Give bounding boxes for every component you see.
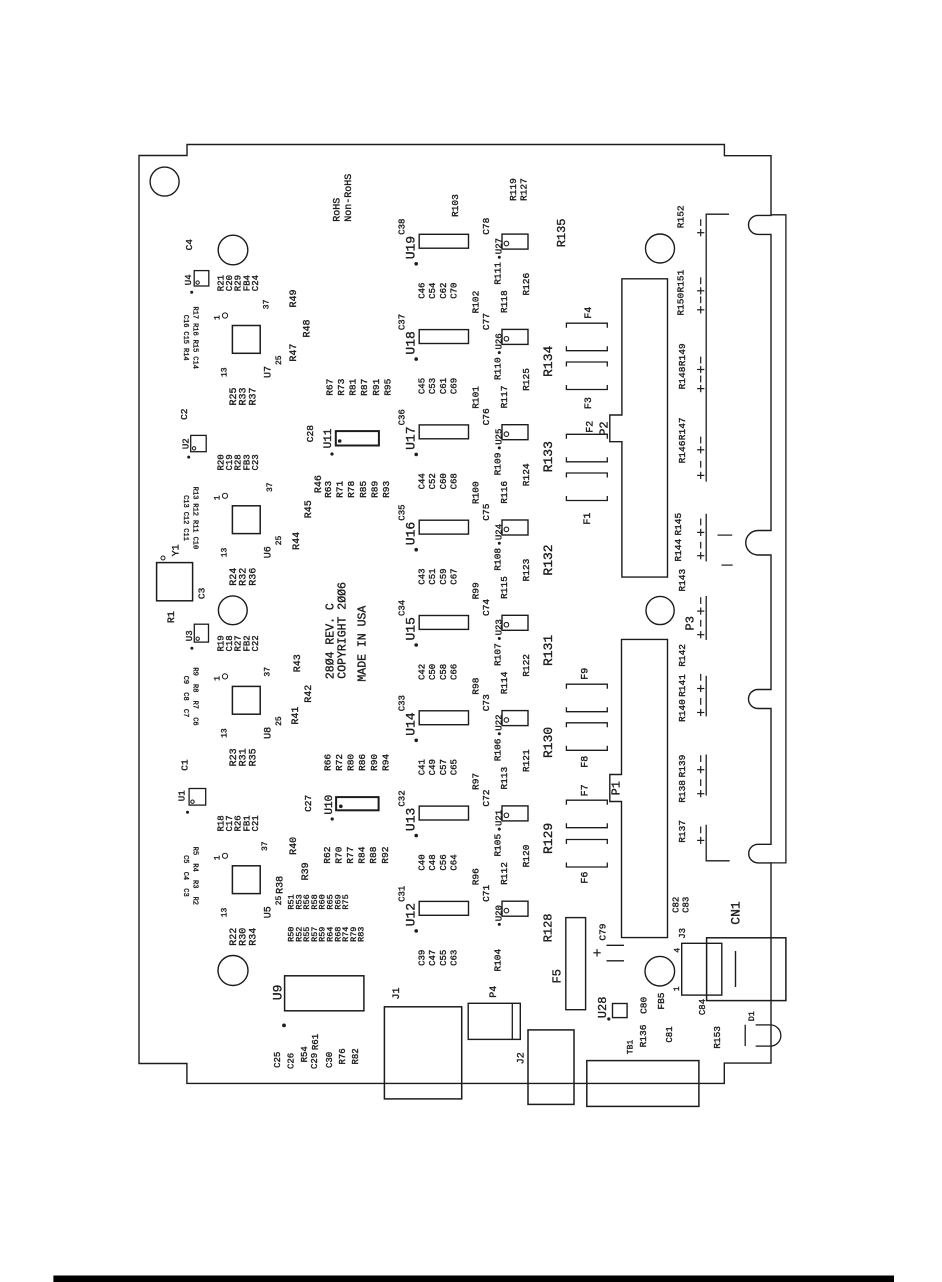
svg-text:F2: F2 xyxy=(586,421,597,433)
svg-text:C32: C32 xyxy=(398,790,408,806)
svg-text:R144: R144 xyxy=(673,538,684,561)
svg-text:13: 13 xyxy=(221,907,230,917)
svg-text:C3: C3 xyxy=(197,587,208,599)
svg-text:C13: C13 xyxy=(181,495,189,508)
svg-text:U9: U9 xyxy=(271,985,286,1001)
svg-text:R40: R40 xyxy=(289,837,300,855)
svg-text:R16: R16 xyxy=(191,323,199,336)
svg-text:R98: R98 xyxy=(471,677,482,694)
svg-text:R80: R80 xyxy=(346,754,357,771)
svg-text:C39: C39 xyxy=(418,950,428,966)
svg-text:C25: C25 xyxy=(273,1052,283,1068)
svg-text:C83: C83 xyxy=(682,897,692,913)
svg-text:R122: R122 xyxy=(521,654,532,677)
svg-text:R70: R70 xyxy=(333,846,344,863)
svg-text:C24: C24 xyxy=(251,275,261,291)
svg-text:C59: C59 xyxy=(439,568,449,584)
svg-text:C49: C49 xyxy=(428,759,438,775)
svg-text:U25: U25 xyxy=(495,429,505,445)
svg-text:R123: R123 xyxy=(521,558,532,581)
svg-text:R76: R76 xyxy=(338,1048,348,1064)
svg-text:25: 25 xyxy=(275,535,284,545)
svg-text:R63: R63 xyxy=(323,480,334,497)
svg-text:R103: R103 xyxy=(450,194,461,217)
svg-text:R90: R90 xyxy=(369,754,380,771)
svg-text:U12: U12 xyxy=(404,903,419,926)
svg-text:C78: C78 xyxy=(481,217,492,234)
svg-text:R44: R44 xyxy=(292,532,303,550)
svg-text:R39: R39 xyxy=(301,862,312,880)
svg-text:C36: C36 xyxy=(398,409,408,425)
svg-text:Non-RoHS: Non-RoHS xyxy=(344,174,355,222)
svg-text:R107: R107 xyxy=(492,643,503,666)
svg-text:F5: F5 xyxy=(551,969,565,983)
svg-text:P4: P4 xyxy=(489,986,500,998)
svg-text:C54: C54 xyxy=(428,283,438,299)
svg-text:J3: J3 xyxy=(678,928,688,939)
svg-text:R139: R139 xyxy=(677,754,688,777)
svg-text:R89: R89 xyxy=(369,480,380,497)
svg-text:C26: C26 xyxy=(287,1053,297,1069)
svg-text:F6: F6 xyxy=(581,872,592,884)
svg-text:U4: U4 xyxy=(184,274,194,285)
svg-text:R8: R8 xyxy=(191,684,199,692)
svg-text:R100: R100 xyxy=(471,481,482,504)
svg-text:37: 37 xyxy=(261,841,270,851)
svg-text:C60: C60 xyxy=(439,473,449,489)
svg-text:C67: C67 xyxy=(450,568,460,584)
svg-text:R54: R54 xyxy=(300,1046,310,1062)
svg-text:R152: R152 xyxy=(676,205,687,228)
svg-text:MADE IN USA: MADE IN USA xyxy=(356,606,369,682)
svg-text:R75: R75 xyxy=(341,894,351,909)
svg-text:C45: C45 xyxy=(418,378,428,394)
svg-text:C47: C47 xyxy=(428,950,438,966)
svg-text:TB1: TB1 xyxy=(626,1040,635,1055)
svg-text:C3: C3 xyxy=(181,888,189,896)
svg-text:R83: R83 xyxy=(357,927,367,942)
svg-text:R147: R147 xyxy=(677,417,688,440)
svg-text:R92: R92 xyxy=(380,846,391,863)
svg-text:C81: C81 xyxy=(665,1026,675,1042)
svg-text:R91: R91 xyxy=(371,378,382,395)
svg-text:U24: U24 xyxy=(495,524,505,540)
svg-text:C7: C7 xyxy=(181,709,189,717)
svg-text:13: 13 xyxy=(221,728,230,738)
svg-text:R87: R87 xyxy=(359,379,370,396)
svg-text:R108: R108 xyxy=(492,548,503,571)
svg-text:P2: P2 xyxy=(597,421,611,435)
svg-text:R125: R125 xyxy=(521,368,532,391)
svg-text:1: 1 xyxy=(214,855,223,860)
svg-text:R130: R130 xyxy=(541,727,556,758)
svg-text:U2: U2 xyxy=(182,438,192,449)
svg-text:R137: R137 xyxy=(677,820,688,843)
svg-text:R124: R124 xyxy=(521,463,532,486)
svg-text:C72: C72 xyxy=(481,789,492,806)
svg-text:R141: R141 xyxy=(677,674,688,697)
svg-text:R49: R49 xyxy=(289,289,300,307)
svg-text:R13: R13 xyxy=(191,487,199,500)
svg-text:C10: C10 xyxy=(191,537,199,550)
svg-text:C69: C69 xyxy=(450,378,460,394)
svg-text:U16: U16 xyxy=(404,522,419,545)
svg-text:C30: C30 xyxy=(325,1052,335,1068)
svg-text:R110: R110 xyxy=(492,357,503,380)
svg-text:1: 1 xyxy=(214,676,223,681)
svg-text:13: 13 xyxy=(221,547,230,557)
svg-text:C2: C2 xyxy=(179,408,190,420)
svg-text:R104: R104 xyxy=(492,948,503,971)
svg-text:25: 25 xyxy=(275,355,284,365)
svg-text:U27: U27 xyxy=(495,238,505,254)
svg-text:R117: R117 xyxy=(499,386,510,409)
svg-text:F7: F7 xyxy=(581,784,592,796)
svg-text:U3: U3 xyxy=(185,630,195,641)
svg-text:R111: R111 xyxy=(492,262,503,285)
svg-text:F3: F3 xyxy=(584,397,595,409)
svg-text:R61: R61 xyxy=(311,1034,321,1050)
svg-text:R112: R112 xyxy=(499,862,510,885)
svg-text:U8: U8 xyxy=(263,727,274,739)
svg-text:P1: P1 xyxy=(610,781,624,795)
svg-text:R11: R11 xyxy=(191,520,199,533)
svg-text:R134: R134 xyxy=(541,345,556,376)
svg-text:C42: C42 xyxy=(418,664,428,680)
svg-text:U6: U6 xyxy=(263,546,274,558)
svg-text:R140: R140 xyxy=(677,699,688,722)
svg-text:R35: R35 xyxy=(249,748,260,766)
svg-text:F9: F9 xyxy=(581,668,592,680)
svg-text:R14: R14 xyxy=(181,348,189,361)
svg-text:C4: C4 xyxy=(181,872,189,880)
svg-text:C22: C22 xyxy=(251,635,261,651)
svg-text:R101: R101 xyxy=(471,386,482,409)
svg-text:R132: R132 xyxy=(541,544,556,575)
svg-text:R127: R127 xyxy=(518,178,529,201)
svg-text:R3: R3 xyxy=(191,880,199,888)
svg-text:U23: U23 xyxy=(495,619,505,635)
svg-text:C34: C34 xyxy=(398,600,408,616)
svg-text:R1: R1 xyxy=(167,611,178,623)
svg-text:C56: C56 xyxy=(439,854,449,870)
svg-text:R146: R146 xyxy=(677,440,688,463)
svg-text:R47: R47 xyxy=(289,344,300,362)
svg-text:C75: C75 xyxy=(481,503,492,520)
svg-text:R38: R38 xyxy=(275,876,286,894)
svg-text:R73: R73 xyxy=(336,378,347,395)
svg-text:R82: R82 xyxy=(351,1048,361,1064)
svg-text:D1: D1 xyxy=(747,1011,757,1021)
svg-text:U7: U7 xyxy=(263,366,274,378)
svg-text:C12: C12 xyxy=(181,512,189,525)
svg-text:C33: C33 xyxy=(398,695,408,711)
svg-text:C65: C65 xyxy=(450,759,460,775)
svg-text:R153: R153 xyxy=(712,1026,723,1049)
svg-text:R34: R34 xyxy=(249,928,260,946)
svg-text:C55: C55 xyxy=(439,950,449,966)
svg-text:C28: C28 xyxy=(305,425,316,442)
svg-text:C71: C71 xyxy=(481,884,492,901)
svg-text:R41: R41 xyxy=(291,707,302,725)
svg-text:C6: C6 xyxy=(191,717,199,725)
svg-text:F1: F1 xyxy=(583,513,594,525)
svg-text:R133: R133 xyxy=(541,441,556,472)
svg-text:13: 13 xyxy=(221,367,230,377)
svg-text:C79: C79 xyxy=(597,923,608,940)
svg-text:R128: R128 xyxy=(542,913,556,942)
svg-text:R148: R148 xyxy=(677,366,688,389)
svg-text:C44: C44 xyxy=(418,473,428,489)
svg-text:R84: R84 xyxy=(357,846,368,863)
svg-text:R102: R102 xyxy=(471,290,482,313)
svg-text:R118: R118 xyxy=(499,290,510,313)
svg-text:C50: C50 xyxy=(428,664,438,680)
svg-text:25: 25 xyxy=(275,716,284,726)
svg-text:C46: C46 xyxy=(418,283,428,299)
svg-text:C48: C48 xyxy=(428,854,438,870)
svg-text:U19: U19 xyxy=(404,236,419,259)
svg-text:37: 37 xyxy=(264,667,273,677)
svg-text:R106: R106 xyxy=(492,738,503,761)
svg-text:U20: U20 xyxy=(495,905,505,921)
svg-text:C1: C1 xyxy=(180,759,191,771)
svg-text:C41: C41 xyxy=(418,759,428,775)
svg-text:R116: R116 xyxy=(499,481,510,504)
svg-text:25: 25 xyxy=(275,895,284,905)
svg-text:R126: R126 xyxy=(521,272,532,295)
svg-text:37: 37 xyxy=(262,299,271,309)
svg-text:C57: C57 xyxy=(439,759,449,775)
svg-text:1: 1 xyxy=(214,315,223,320)
svg-text:F8: F8 xyxy=(581,756,592,768)
svg-text:U14: U14 xyxy=(404,712,419,736)
svg-text:C15: C15 xyxy=(181,331,189,344)
svg-text:R96: R96 xyxy=(471,868,482,885)
svg-text:RoHS: RoHS xyxy=(333,198,344,222)
svg-text:C9: C9 xyxy=(181,676,189,684)
svg-text:R7: R7 xyxy=(191,701,199,709)
svg-text:R62: R62 xyxy=(322,846,333,863)
svg-text:R86: R86 xyxy=(357,754,368,771)
svg-text:R115: R115 xyxy=(499,576,510,599)
svg-text:R12: R12 xyxy=(191,503,199,516)
svg-text:U13: U13 xyxy=(404,808,419,831)
svg-text:C63: C63 xyxy=(450,950,460,966)
svg-text:R81: R81 xyxy=(348,378,359,395)
svg-text:R88: R88 xyxy=(368,846,379,863)
svg-text:U1: U1 xyxy=(177,790,187,801)
svg-text:R95: R95 xyxy=(382,378,393,395)
svg-text:U21: U21 xyxy=(495,810,505,826)
svg-text:CN1: CN1 xyxy=(729,901,744,925)
svg-text:R66: R66 xyxy=(322,754,333,771)
svg-text:R9: R9 xyxy=(191,667,199,675)
svg-text:C66: C66 xyxy=(450,664,460,680)
svg-text:R113: R113 xyxy=(499,766,510,789)
svg-text:C5: C5 xyxy=(181,855,189,863)
svg-text:R97: R97 xyxy=(471,773,482,790)
svg-text:C35: C35 xyxy=(398,504,408,520)
svg-text:C64: C64 xyxy=(450,854,460,870)
svg-text:C4: C4 xyxy=(184,239,195,251)
svg-text:R72: R72 xyxy=(334,754,345,771)
svg-text:U18: U18 xyxy=(404,331,419,354)
svg-text:R135: R135 xyxy=(555,218,569,247)
svg-text:R15: R15 xyxy=(191,340,199,353)
svg-text:R131: R131 xyxy=(541,635,556,666)
svg-text:C51: C51 xyxy=(428,568,438,584)
svg-text:R94: R94 xyxy=(380,754,391,771)
svg-text:R36: R36 xyxy=(249,568,260,586)
svg-text:R77: R77 xyxy=(345,847,356,864)
svg-text:C23: C23 xyxy=(251,454,261,470)
svg-text:U10: U10 xyxy=(324,795,336,815)
svg-text:R145: R145 xyxy=(673,512,684,535)
svg-text:Y1: Y1 xyxy=(172,544,183,556)
svg-text:C31: C31 xyxy=(398,886,408,902)
svg-text:R151: R151 xyxy=(676,269,687,292)
svg-text:C43: C43 xyxy=(418,568,428,584)
svg-text:R45: R45 xyxy=(304,500,315,518)
svg-text:1: 1 xyxy=(673,986,682,991)
svg-text:C21: C21 xyxy=(251,815,261,831)
svg-text:C61: C61 xyxy=(439,378,449,394)
svg-text:R136: R136 xyxy=(638,1024,649,1047)
svg-text:C82: C82 xyxy=(671,897,681,913)
svg-text:C14: C14 xyxy=(191,356,199,369)
svg-text:R2: R2 xyxy=(191,897,199,905)
svg-text:1: 1 xyxy=(214,495,223,500)
svg-text:37: 37 xyxy=(266,482,275,492)
svg-text:R93: R93 xyxy=(381,480,392,497)
svg-text:C73: C73 xyxy=(481,694,492,711)
svg-text:C68: C68 xyxy=(450,473,460,489)
svg-text:J2: J2 xyxy=(517,1052,528,1064)
svg-text:R17: R17 xyxy=(191,307,199,320)
svg-text:R105: R105 xyxy=(492,833,503,856)
svg-text:U11: U11 xyxy=(323,428,335,448)
svg-text:R42: R42 xyxy=(304,685,315,703)
svg-text:J1: J1 xyxy=(392,987,403,999)
svg-text:U17: U17 xyxy=(404,426,419,449)
svg-text:R150: R150 xyxy=(676,292,687,315)
svg-text:R43: R43 xyxy=(293,654,304,672)
svg-text:C53: C53 xyxy=(428,378,438,394)
svg-text:U22: U22 xyxy=(495,714,505,730)
svg-text:R149: R149 xyxy=(677,343,688,366)
svg-text:R121: R121 xyxy=(521,749,532,772)
svg-text:C27: C27 xyxy=(303,795,314,812)
svg-text:R114: R114 xyxy=(499,671,510,694)
svg-text:U26: U26 xyxy=(495,333,505,349)
svg-text:R4: R4 xyxy=(191,863,199,871)
svg-text:R120: R120 xyxy=(521,844,532,867)
svg-text:C80: C80 xyxy=(638,996,649,1013)
svg-text:P3: P3 xyxy=(684,616,698,630)
svg-text:U5: U5 xyxy=(263,906,274,918)
svg-text:U15: U15 xyxy=(404,617,419,640)
svg-text:R129: R129 xyxy=(541,823,556,854)
svg-text:C77: C77 xyxy=(481,313,492,330)
svg-text:C40: C40 xyxy=(418,854,428,870)
svg-text:C58: C58 xyxy=(439,664,449,680)
svg-text:C37: C37 xyxy=(398,314,408,330)
svg-text:C38: C38 xyxy=(398,219,408,235)
svg-text:R138: R138 xyxy=(677,780,688,803)
svg-text:R143: R143 xyxy=(677,568,688,591)
svg-text:F4: F4 xyxy=(584,307,595,319)
svg-text:R37: R37 xyxy=(249,387,260,405)
svg-text:R78: R78 xyxy=(346,480,357,497)
svg-text:C70: C70 xyxy=(450,283,460,299)
svg-text:R71: R71 xyxy=(335,480,346,497)
svg-text:R67: R67 xyxy=(324,379,335,396)
svg-text:R5: R5 xyxy=(191,847,199,855)
svg-text:R142: R142 xyxy=(677,644,688,667)
svg-text:R85: R85 xyxy=(358,480,369,497)
svg-text:4: 4 xyxy=(673,948,682,953)
svg-text:R109: R109 xyxy=(492,452,503,475)
svg-text:R48: R48 xyxy=(303,319,314,337)
svg-text:COPYRIGHT 2ØØ6: COPYRIGHT 2ØØ6 xyxy=(336,582,349,679)
svg-text:FB5: FB5 xyxy=(656,992,667,1009)
svg-text:C29: C29 xyxy=(310,1053,320,1069)
svg-text:C74: C74 xyxy=(481,599,492,616)
svg-text:C76: C76 xyxy=(481,408,492,425)
svg-text:C11: C11 xyxy=(181,528,189,541)
svg-text:C8: C8 xyxy=(181,692,189,700)
svg-text:U28: U28 xyxy=(596,997,610,1019)
svg-text:C62: C62 xyxy=(439,283,449,299)
svg-text:R99: R99 xyxy=(471,582,482,599)
svg-text:C52: C52 xyxy=(428,473,438,489)
svg-text:C16: C16 xyxy=(181,315,189,328)
